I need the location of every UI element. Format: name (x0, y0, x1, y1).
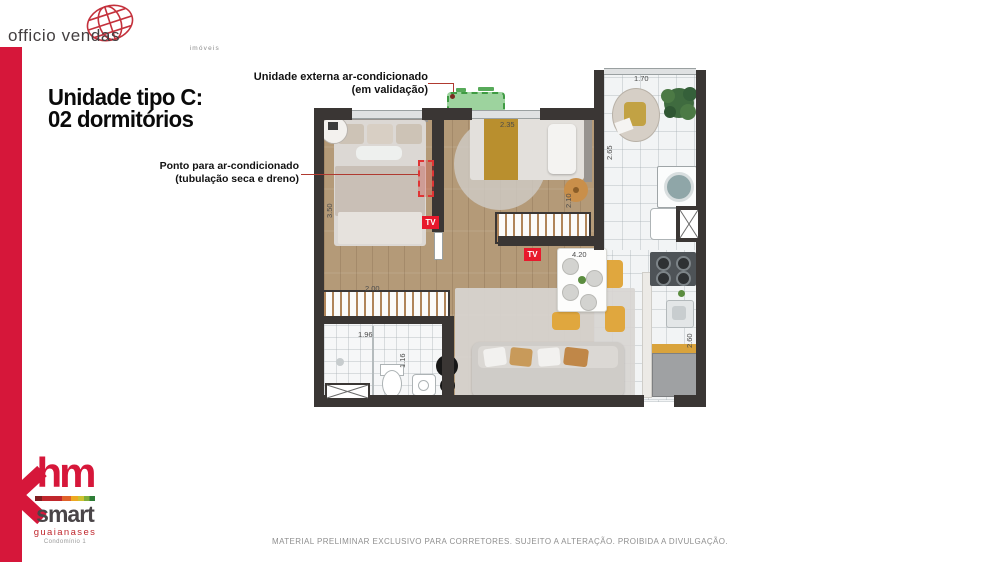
bed1-throw (338, 212, 422, 244)
dim-balcony-depth: 2.65 (605, 145, 614, 160)
door-leaf (434, 232, 443, 260)
wall (498, 236, 598, 246)
disclaimer-text: MATERIAL PRELIMINAR EXCLUSIVO PARA CORRE… (0, 537, 1000, 546)
nightstand-phone (328, 122, 338, 130)
stove-burner (676, 271, 691, 286)
bed1-pillow (356, 146, 402, 160)
pouf-button (573, 187, 579, 193)
sofa-pillow (509, 347, 533, 367)
hm-wordmark: hm (30, 450, 100, 496)
washer-drum (664, 172, 694, 202)
cabinet (652, 353, 698, 397)
smart-wordmark: smart (30, 501, 100, 527)
wall (442, 316, 454, 396)
bed2-pillow (548, 124, 576, 174)
bed1-pillow (396, 124, 422, 144)
bed2-headboard (584, 114, 592, 182)
ac-point-marker (418, 160, 434, 197)
wall (540, 108, 600, 120)
floor-plan: TV TV 1.70 2.65 2.35 2.10 3.50 4.20 2.00… (312, 62, 708, 414)
bed1-pillow (367, 124, 393, 144)
shaft-icon (325, 383, 370, 400)
officio-logo-subtext: imóveis (148, 45, 220, 52)
plate (580, 294, 597, 311)
slide: { "officio_logo": { "name": "officio ven… (0, 0, 1000, 562)
dim-bedroom2-width: 2.35 (500, 120, 515, 129)
plate (562, 284, 579, 301)
nightstand (320, 116, 348, 144)
plate (562, 258, 579, 275)
dim-bathroom-width: 1.96 (358, 330, 373, 339)
officio-logo-text: officio vendas (8, 26, 120, 46)
tv-badge: TV (422, 216, 439, 229)
balcony-rail (604, 68, 696, 75)
dim-balcony-width: 1.70 (634, 74, 649, 83)
sofa-pillow (483, 347, 507, 368)
title-line-2: 02 dormitórios (48, 108, 203, 130)
hm-logo: hm smart guaianases Condomínio 1 (30, 450, 100, 547)
sofa-pillow (563, 347, 589, 368)
kitchen-sink-bowl (672, 306, 686, 320)
leader-dot (450, 94, 455, 99)
annotation-ac-point: Ponto para ar-condicionado (tubulação se… (143, 160, 299, 186)
title-line-1: Unidade tipo C: (48, 86, 203, 108)
shower-drain (336, 358, 344, 366)
dim-wardrobe-width: 2.00 (365, 284, 380, 293)
sink-bowl (418, 380, 429, 391)
stove-burner (656, 256, 671, 271)
dining-chair (552, 312, 580, 330)
dim-bathroom-depth: 1.16 (398, 353, 407, 368)
sofa-pillow (537, 347, 560, 367)
tv-badge: TV (524, 248, 541, 261)
dim-bedroom1-depth: 3.50 (325, 203, 334, 218)
wall (422, 108, 472, 120)
toilet-icon (382, 370, 402, 398)
stove-burner (656, 271, 671, 286)
shaft-icon (676, 206, 702, 242)
wall (594, 70, 604, 250)
page-title: Unidade tipo C: 02 dormitórios (48, 86, 203, 130)
window (352, 110, 422, 119)
kitchen-plant (678, 290, 685, 297)
wall (314, 108, 324, 407)
dining-chair (605, 306, 625, 332)
leader-line (301, 174, 419, 175)
officio-logo: officio vendas imóveis (0, 0, 230, 55)
table-plant (578, 276, 586, 284)
kitchen-counter (642, 272, 652, 398)
stove-burner (676, 256, 691, 271)
plate (586, 270, 603, 287)
dim-kitchen-depth: 2.60 (685, 333, 694, 348)
window (472, 110, 540, 119)
annotation-ac-point-line2: (tubulação seca e dreno) (143, 173, 299, 186)
plant-icon (658, 80, 700, 126)
dim-bedroom2-depth: 2.10 (564, 193, 573, 208)
dim-living-width: 4.20 (572, 250, 587, 259)
wall (314, 316, 442, 324)
annotation-ac-point-line1: Ponto para ar-condicionado (143, 160, 299, 173)
